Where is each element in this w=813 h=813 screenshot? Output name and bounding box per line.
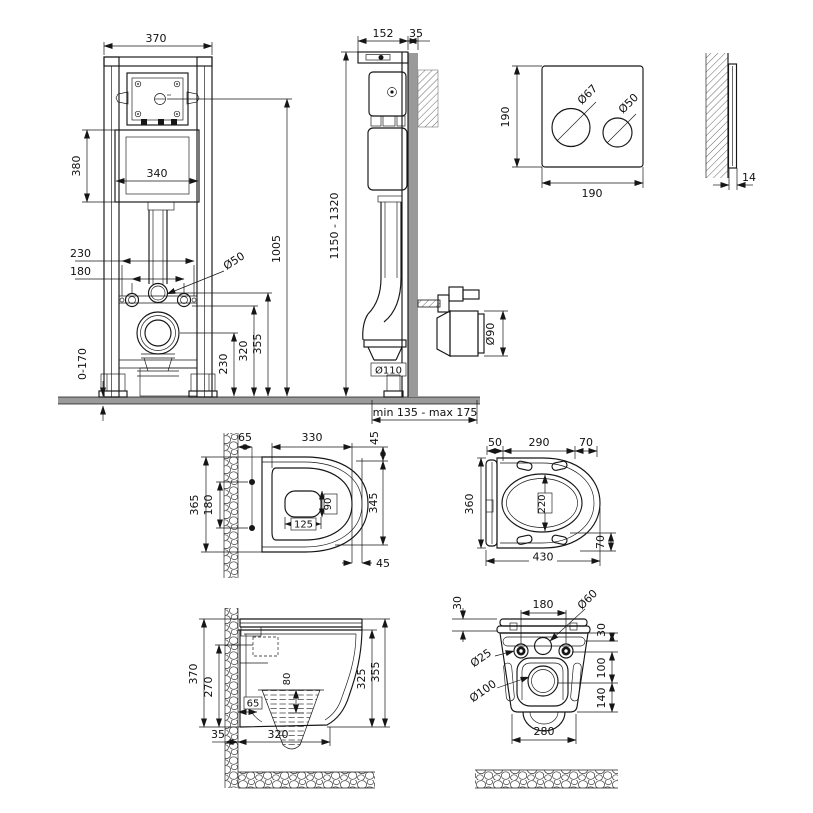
flush-elbow — [149, 284, 168, 303]
floor-texture — [475, 770, 618, 788]
dim-opening-width: 90 — [323, 498, 334, 511]
dim-water-depth: 80 — [282, 673, 293, 686]
dim-lid-thickness: 30 — [451, 596, 464, 610]
hinge-fixing-hidden — [253, 637, 278, 656]
flush-plate-side-view: 14 — [706, 53, 756, 190]
dim-anchor-spacing: 230 — [70, 247, 91, 260]
dim-inlet-to-outlet: 100 — [595, 658, 608, 679]
dim-big-button: Ø67 — [575, 82, 600, 107]
dim-bolt-height: 320 — [237, 341, 250, 362]
dim-body-width: 280 — [534, 725, 555, 738]
dim-front-span: 70 — [579, 436, 593, 449]
technical-drawing: 370 380 340 230 180 Ø50 0-170 230 320 35… — [0, 0, 813, 813]
dim-flush-height: 355 — [251, 334, 264, 355]
top-wall-bracket — [358, 52, 408, 63]
dim-plate-height: 190 — [499, 107, 512, 128]
dim-frame-height: 1150 - 1320 — [328, 193, 341, 260]
dim-bolt-spacing-rear: 180 — [533, 598, 554, 611]
wall-fixing-rod — [418, 295, 449, 312]
right-fixing-bolt — [178, 294, 191, 307]
outlet-hole — [528, 666, 558, 696]
flush-pipe-side — [363, 202, 401, 340]
dim-seat-width: 360 — [463, 494, 476, 515]
wall-texture — [225, 608, 238, 788]
dim-drain-pipe-dia: Ø90 — [484, 323, 497, 346]
left-fixing-bolt — [126, 294, 139, 307]
drain-outlet — [137, 312, 179, 376]
dim-cistern-height: 380 — [70, 156, 83, 177]
bolt-point — [249, 479, 255, 485]
seat-lid-side — [240, 619, 362, 636]
dim-seat-length: 430 — [533, 551, 554, 564]
seat-top-view: 220 50 290 70 360 430 70 — [463, 436, 616, 566]
seat-rear — [497, 626, 590, 633]
dim-front-height: 70 — [594, 535, 607, 549]
dim-rim-height: 325 — [355, 669, 368, 690]
dim-plate-thickness: 14 — [742, 171, 756, 184]
flush-pipe — [149, 210, 167, 284]
dim-plate-width: 190 — [582, 187, 603, 200]
dim-trap-offset: 65 — [247, 699, 260, 710]
dim-wall-thickness: 35 — [409, 27, 423, 40]
dim-bottom-length: 320 — [268, 728, 289, 741]
dim-frame-width: 370 — [146, 32, 167, 45]
adjustable-feet — [99, 374, 217, 397]
dim-small-button: Ø50 — [616, 91, 641, 116]
bowl-rear-view: 30 180 Ø60 30 100 140 Ø25 Ø100 280 — [451, 587, 618, 788]
dim-top-offset: 30 — [595, 623, 608, 637]
dim-rim-span: 345 — [367, 493, 380, 514]
floor-outlet — [364, 340, 406, 360]
dim-frame-depth: 152 — [373, 27, 394, 40]
dim-seat-opening: 220 — [537, 494, 548, 513]
floor-texture — [238, 772, 375, 788]
bowl-opening — [285, 491, 321, 517]
dim-hinge-offset: 50 — [488, 436, 502, 449]
dim-pad-span: 290 — [529, 436, 550, 449]
left-bracket-wing — [116, 92, 128, 104]
dim-total-height: 370 — [187, 664, 200, 685]
dim-cistern-width: 340 — [147, 167, 168, 180]
flush-plate — [542, 66, 643, 167]
dim-bowl-width: 365 — [188, 495, 201, 516]
dim-wall-thickness-side: 35 — [211, 728, 225, 741]
drain-connector — [437, 287, 484, 356]
dim-bolt-hole-dia: Ø25 — [468, 646, 494, 670]
dim-opening-length: 125 — [294, 520, 313, 531]
big-flush-button — [552, 109, 590, 147]
dim-overall-height: 355 — [369, 662, 382, 683]
dim-rear-height: 270 — [202, 677, 215, 698]
dim-rim-front-offset: 45 — [368, 431, 381, 445]
dim-feet-adjust: 0-170 — [76, 348, 89, 380]
dim-outlet-range: min 135 - max 175 — [373, 406, 478, 419]
lid-rear — [500, 619, 587, 626]
dim-bolt-spacing: 180 — [70, 265, 91, 278]
dim-outlet-dia-rear: Ø100 — [467, 677, 499, 705]
dim-inlet-dia: Ø60 — [575, 587, 600, 612]
installation-drawing-page: 370 380 340 230 180 Ø50 0-170 230 320 35… — [0, 0, 813, 813]
cistern-side — [369, 72, 406, 116]
dim-wall-to-bolts: 65 — [238, 431, 252, 444]
dim-outlet-to-bottom: 140 — [595, 688, 608, 709]
bolt-point — [249, 525, 255, 531]
dim-front-offset: 45 — [376, 557, 390, 570]
bowl-side-view: 80 65 370 270 325 355 35 320 — [187, 608, 390, 788]
flush-plate-front-view: Ø67 Ø50 190 190 — [499, 66, 643, 200]
wall-hatch — [706, 53, 728, 178]
hinge-bar — [486, 460, 497, 546]
ground-line — [58, 397, 480, 404]
tank-side — [368, 128, 407, 190]
bowl-top-view: 65 330 45 345 45 365 180 125 90 — [188, 431, 390, 578]
dim-drain-height: 230 — [217, 354, 230, 375]
cistern-tank — [115, 130, 199, 202]
dim-rim-length: 330 — [302, 431, 323, 444]
dim-bolt-spacing-top: 180 — [202, 495, 215, 516]
frame-top-bar — [104, 57, 212, 66]
dim-actuator-height: 1005 — [270, 235, 283, 263]
dim-flush-pipe-dia: Ø50 — [221, 249, 247, 272]
wall-section — [408, 53, 418, 397]
anchor-block — [418, 70, 438, 127]
wall-texture — [224, 433, 238, 578]
frame-front-view: 370 380 340 230 180 Ø50 0-170 230 320 35… — [70, 32, 292, 421]
frame-side-view: Ø110 Ø90 152 35 1150 - 1320 min 135 - ma… — [328, 27, 508, 424]
